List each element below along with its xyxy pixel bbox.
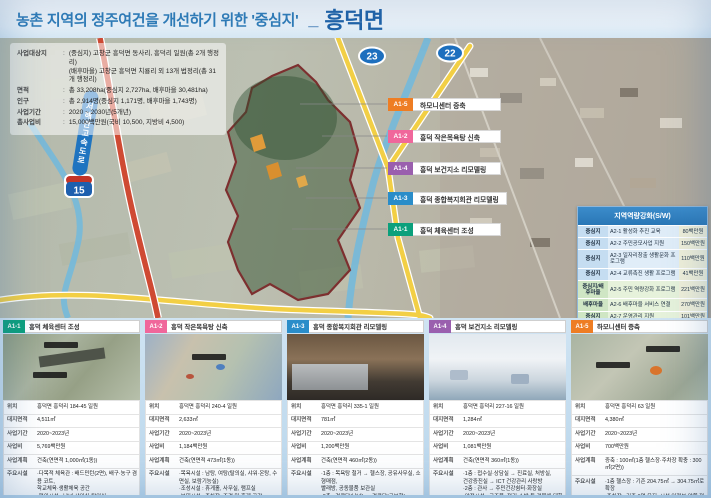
label-text: 흥덕 보건지소 리모델링 — [413, 162, 501, 175]
photo-label-tag — [192, 354, 226, 360]
project-cards: A1-1 흥덕 체육센터 조성 위치흥덕면 흥덕리 184-45 일원 대지면적… — [3, 320, 708, 495]
project-card-a1-1: A1-1 흥덕 체육센터 조성 위치흥덕면 흥덕리 184-45 일원 대지면적… — [3, 320, 140, 495]
map-label-a1-5: A1-5 하모니센터 증축 — [388, 98, 501, 111]
label-code-badge: A1-4 — [388, 162, 413, 175]
table-row: 배후마을 A2-6 배후마을 서비스 연결 270백만원 — [578, 298, 707, 310]
map-label-a1-2: A1-2 흥덕 작은목욕탕 신축 — [388, 130, 501, 143]
project-card-a1-4: A1-4 흥덕 보건지소 리모델링 위치흥덕면 흥덕리 227-16 일원 대지… — [429, 320, 566, 495]
poster: 농촌 지역의 정주여건을 개선하기 위한 '중심지' _ 흥덕면 — [0, 0, 711, 498]
expressway-shield-15: 15 — [64, 174, 94, 198]
table-row: 중심지 A2-1 활성화 추진 교육 80백만원 — [578, 225, 707, 237]
card-title: 흥덕 작은목욕탕 신축 — [167, 320, 282, 333]
photo-label-tag — [646, 346, 680, 352]
table-row: 중심지/배후마을 A2-5 주민 역량강화 프로그램 221백만원 — [578, 280, 707, 298]
capacity-table-title: 지역역량강화(S/W) — [578, 207, 707, 225]
info-row-period: 사업기간: 2020 ~ 2030년(5개년) — [17, 109, 219, 118]
project-card-a1-3: A1-3 흥덕 종합복지회관 리모델링 위치흥덕면 흥덕리 335-1 일원 대… — [287, 320, 424, 495]
card-code-badge: A1-2 — [145, 320, 167, 333]
card-title: 흥덕 보건지소 리모델링 — [451, 320, 566, 333]
label-text: 하모니센터 증축 — [413, 98, 501, 111]
card-title: 흥덕 종합복지회관 리모델링 — [309, 320, 424, 333]
card-title: 하모니센터 증축 — [593, 320, 708, 333]
label-code-badge: A1-1 — [388, 223, 413, 236]
card-code-badge: A1-4 — [429, 320, 451, 333]
info-row-population: 인구: 총 2,914명(중심지 1,171명, 배후마을 1,743명) — [17, 98, 219, 107]
label-text: 흥덕 종합복지회관 리모델링 — [413, 192, 507, 205]
info-row-area: 면적: 총 33,208ha(중심지 2,727ha, 배후마을 30,481h… — [17, 87, 219, 96]
card-photo — [287, 334, 424, 400]
label-text: 흥덕 작은목욕탕 신축 — [413, 130, 501, 143]
svg-text:15: 15 — [73, 186, 85, 197]
label-text: 흥덕 체육센터 조성 — [413, 223, 501, 236]
bed-shape — [450, 370, 468, 380]
card-photo — [145, 334, 282, 400]
project-info-panel: 사업대상지: (중심지) 고창군 흥덕면 동사리, 흥덕리 일원(총 2개 행정… — [10, 43, 226, 135]
project-card-a1-5: A1-5 하모니센터 증축 위치흥덕면 흥덕리 63 일원 대지면적4,380㎡… — [571, 320, 708, 495]
label-code-badge: A1-5 — [388, 98, 413, 111]
table-row: 중심지 A2-3 일자리창출 생활문화 프로그램 110백만원 — [578, 249, 707, 267]
route-shield-22: 22 — [437, 45, 463, 62]
building-shape — [38, 348, 105, 368]
aerial-map: 23 22 15 서해안고속도로 사업대상지: (중심지) 고창군 흥덕면 동사… — [0, 38, 711, 318]
photo-label-tag — [44, 342, 78, 348]
card-code-badge: A1-5 — [571, 320, 593, 333]
card-code-badge: A1-1 — [3, 320, 25, 333]
map-label-a1-1: A1-1 흥덕 체육센터 조성 — [388, 223, 501, 236]
photo-label-tag — [596, 362, 630, 368]
table-row: 중심지 A2-4 교류촉진 생활 프로그램 41백만원 — [578, 268, 707, 280]
table-row: 중심지 A2-2 주민공모사업 지원 150백만원 — [578, 237, 707, 249]
title-separator: _ — [308, 9, 318, 30]
project-card-a1-2: A1-2 흥덕 작은목욕탕 신축 위치흥덕면 흥덕리 240-4 일원 대지면적… — [145, 320, 282, 495]
card-title: 흥덕 체육센터 조성 — [25, 320, 140, 333]
info-row-site: 사업대상지: (중심지) 고창군 흥덕면 동사리, 흥덕리 일원(총 2개 행정… — [17, 50, 219, 85]
roof-shape — [216, 364, 225, 370]
route-shield-23: 23 — [359, 48, 385, 65]
label-code-badge: A1-2 — [388, 130, 413, 143]
card-photo — [3, 334, 140, 400]
table-row: 중심지 A2-7 운영관리 지원 101백만원 — [578, 311, 707, 318]
card-code-badge: A1-3 — [287, 320, 309, 333]
photo-label-tag — [33, 372, 67, 378]
bed-shape — [511, 374, 529, 384]
page-title: 농촌 지역의 정주여건을 개선하기 위한 '중심지' — [16, 9, 298, 30]
capacity-table: 지역역량강화(S/W) 중심지 A2-1 활성화 추진 교육 80백만원 중심지… — [577, 206, 708, 318]
roof-shape — [186, 374, 194, 379]
svg-text:23: 23 — [366, 52, 378, 63]
card-photo — [571, 334, 708, 400]
map-label-a1-4: A1-4 흥덕 보건지소 리모델링 — [388, 162, 501, 175]
building-shape — [650, 366, 662, 375]
equipment-shape — [292, 364, 367, 390]
title-bar: 농촌 지역의 정주여건을 개선하기 위한 '중심지' _ 흥덕면 — [0, 0, 711, 38]
svg-text:22: 22 — [444, 49, 456, 60]
map-label-a1-3: A1-3 흥덕 종합복지회관 리모델링 — [388, 192, 507, 205]
label-code-badge: A1-3 — [388, 192, 413, 205]
info-row-budget: 총사업비: 15,000백만원(국비 10,500, 지방비 4,500) — [17, 119, 219, 128]
area-name: 흥덕면 — [324, 3, 383, 35]
card-photo — [429, 334, 566, 400]
